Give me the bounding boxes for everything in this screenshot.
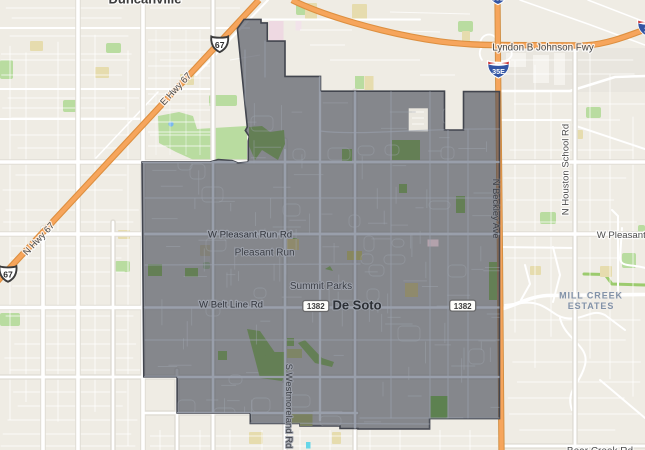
svg-text:Summit Parks: Summit Parks — [290, 281, 352, 292]
svg-text:N Beckley Ave: N Beckley Ave — [491, 179, 501, 239]
svg-text:Lyndon B Johnson Fwy: Lyndon B Johnson Fwy — [492, 43, 594, 54]
svg-text:W Pleasant Run Rd: W Pleasant Run Rd — [208, 229, 292, 240]
svg-text:Duncanville: Duncanville — [109, 0, 182, 7]
svg-text:Pleasant Run: Pleasant Run — [235, 247, 295, 258]
svg-text:67: 67 — [3, 270, 13, 280]
svg-text:35E: 35E — [492, 67, 505, 76]
svg-text:S Westmoreland Rd: S Westmoreland Rd — [283, 364, 294, 449]
svg-text:De Soto: De Soto — [332, 298, 381, 313]
svg-text:W Pleasant Run Rd: W Pleasant Run Rd — [597, 230, 645, 241]
svg-text:Bear Creek Rd: Bear Creek Rd — [567, 446, 633, 450]
svg-text:67: 67 — [215, 40, 225, 50]
svg-text:MILL CREEK: MILL CREEK — [559, 290, 623, 300]
svg-text:1382: 1382 — [454, 302, 472, 311]
svg-text:35E: 35E — [492, 0, 505, 3]
svg-text:N Houston School Rd: N Houston School Rd — [561, 124, 572, 215]
svg-text:1382: 1382 — [307, 302, 325, 311]
svg-text:W Belt Line Rd: W Belt Line Rd — [199, 300, 263, 311]
svg-text:ESTATES: ESTATES — [568, 301, 614, 311]
